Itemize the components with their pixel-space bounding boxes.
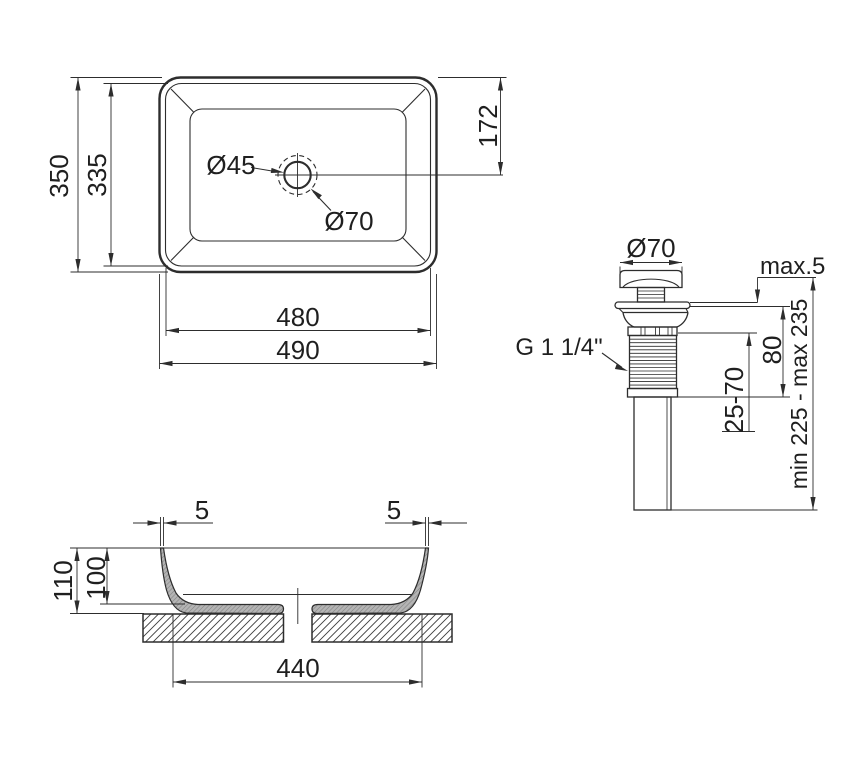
sink-section-view: 5 5 110 100 xyxy=(48,495,467,688)
dim-width-inner: 480 xyxy=(166,268,431,336)
dim-wall-left: 5 xyxy=(133,495,213,546)
width-outer-label: 490 xyxy=(276,335,319,365)
drain-outer-diameter-label: Ø70 xyxy=(324,206,373,236)
width-inner-label: 480 xyxy=(276,302,319,332)
drain-hole xyxy=(275,153,503,197)
wall-right-label: 5 xyxy=(387,495,401,525)
valve-collar xyxy=(628,389,678,398)
valve-cap-dome-line xyxy=(623,279,679,287)
callout-thread-size: G 1 1/4" xyxy=(515,334,629,373)
valve-threaded-body xyxy=(630,336,677,389)
countertop-right-section xyxy=(312,614,452,642)
dim-clamp-range: 25-70 xyxy=(678,333,757,433)
technical-drawing-page: 350 335 172 Ø45 Ø70 xyxy=(0,0,859,766)
base-width-label: 440 xyxy=(276,653,319,683)
valve-flange-disc xyxy=(615,302,690,309)
dim-wall-right: 5 xyxy=(385,495,467,546)
height-inner-label: 335 xyxy=(82,153,112,196)
dim-drain-offset: 172 xyxy=(438,78,507,176)
valve-dome-washer xyxy=(619,309,688,328)
total-height-label: min 225 - max 235 xyxy=(786,299,812,489)
sink-top-view: 350 335 172 Ø45 Ø70 xyxy=(44,78,507,370)
dim-cap-diameter: Ø70 xyxy=(620,233,682,284)
height-outer-label: 350 xyxy=(44,154,74,197)
above-surface-label: max.5 xyxy=(760,253,825,280)
callout-drain-inner-diameter: Ø45 xyxy=(206,150,284,180)
dim-above-surface: max.5 xyxy=(755,253,825,303)
valve-stem xyxy=(638,288,665,303)
dim-height-inner: 335 xyxy=(82,84,168,267)
callout-drain-outer-diameter: Ø70 xyxy=(309,187,374,236)
cap-diameter-label: Ø70 xyxy=(626,233,675,263)
valve-lock-ring xyxy=(628,327,677,336)
basin-depth-label: 100 xyxy=(81,556,111,599)
countertop-left-section xyxy=(143,614,284,642)
height-total-label: 110 xyxy=(48,560,78,601)
valve-tailpipe xyxy=(634,397,671,510)
body-height-label: 80 xyxy=(757,336,787,365)
wall-left-label: 5 xyxy=(195,495,209,525)
drain-inner-diameter-label: Ø45 xyxy=(206,150,255,180)
washbasin-drawing: 350 335 172 Ø45 Ø70 xyxy=(0,0,859,766)
thread-size-label: G 1 1/4" xyxy=(515,334,602,361)
drain-valve-view: Ø70 max.5 G 1 1/4" 80 25- xyxy=(515,233,825,510)
clamp-range-label: 25-70 xyxy=(719,367,749,434)
wall-section-right xyxy=(312,548,429,614)
drain-offset-label: 172 xyxy=(473,104,503,147)
